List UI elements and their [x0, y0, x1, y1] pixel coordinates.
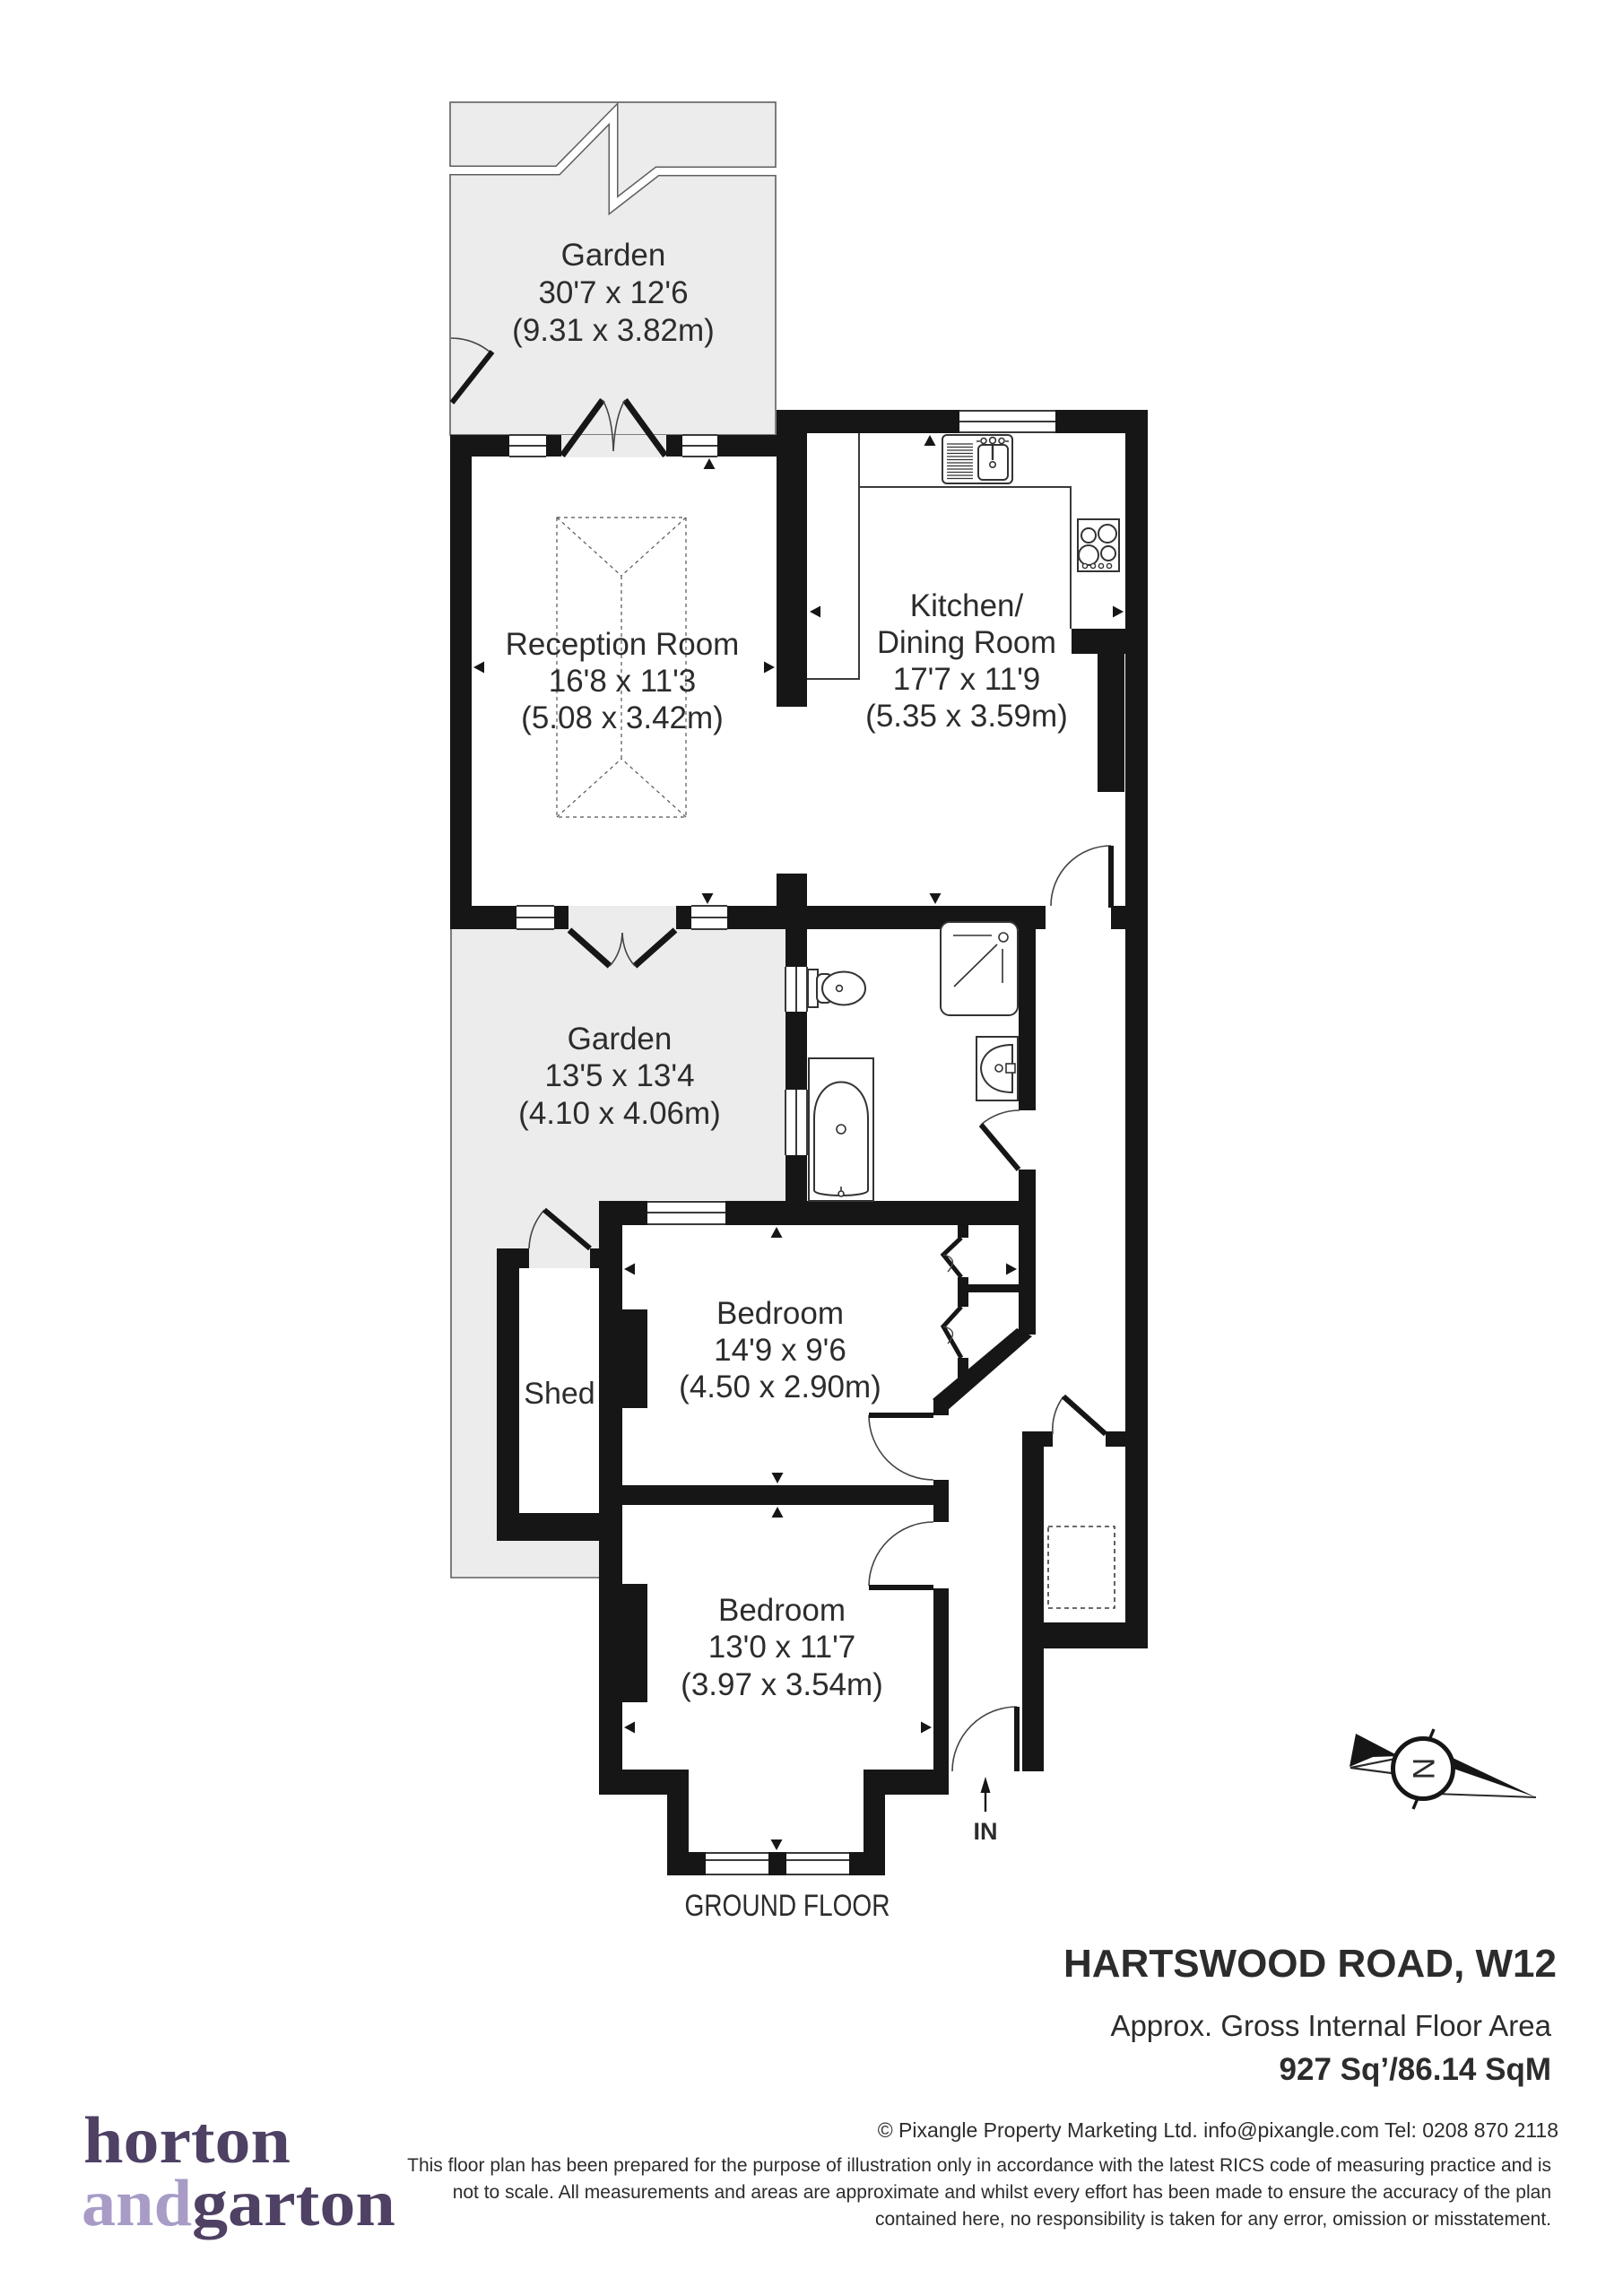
svg-text:Garden: Garden — [568, 1022, 673, 1057]
svg-text:contained here, no responsibil: contained here, no responsibility is tak… — [875, 2209, 1551, 2230]
svg-text:(9.31 x 3.82m): (9.31 x 3.82m) — [512, 313, 715, 348]
svg-text:927 Sq’/86.14 SqM: 927 Sq’/86.14 SqM — [1280, 2052, 1551, 2087]
svg-text:N: N — [1406, 1758, 1440, 1780]
svg-text:30'7 x 12'6: 30'7 x 12'6 — [538, 275, 688, 310]
svg-text:Reception Room: Reception Room — [506, 627, 740, 662]
svg-text:(5.08 x 3.42m): (5.08 x 3.42m) — [521, 700, 724, 735]
svg-text:13'0 x 11'7: 13'0 x 11'7 — [708, 1630, 856, 1665]
svg-text:Shed: Shed — [524, 1377, 595, 1411]
svg-text:16'8 x 11'3: 16'8 x 11'3 — [549, 664, 697, 699]
svg-text:(3.97 x 3.54m): (3.97 x 3.54m) — [681, 1667, 883, 1702]
svg-text:not to scale. All measurements: not to scale. All measurements and areas… — [453, 2182, 1551, 2203]
svg-text:Kitchen/: Kitchen/ — [910, 588, 1024, 623]
svg-text:Approx. Gross Internal Floor A: Approx. Gross Internal Floor Area — [1110, 2009, 1551, 2042]
svg-text:Garden: Garden — [561, 238, 666, 273]
svg-text:(5.35 x 3.59m): (5.35 x 3.59m) — [865, 699, 1068, 734]
svg-text:13'5 x 13'4: 13'5 x 13'4 — [544, 1058, 694, 1093]
svg-text:and: and — [82, 2167, 192, 2240]
svg-text:HARTSWOOD ROAD, W12: HARTSWOOD ROAD, W12 — [1063, 1942, 1557, 1986]
svg-text:Bedroom: Bedroom — [716, 1296, 844, 1331]
svg-text:Bedroom: Bedroom — [718, 1593, 846, 1628]
svg-text:(4.10 x 4.06m): (4.10 x 4.06m) — [518, 1096, 721, 1131]
svg-text:(4.50 x 2.90m): (4.50 x 2.90m) — [679, 1370, 881, 1405]
svg-text:IN: IN — [974, 1818, 998, 1845]
svg-text:© Pixangle Property Marketing: © Pixangle Property Marketing Ltd. info@… — [878, 2118, 1558, 2142]
svg-text:garton: garton — [192, 2167, 395, 2240]
svg-text:Dining Room: Dining Room — [877, 625, 1056, 660]
svg-text:14'9 x 9'6: 14'9 x 9'6 — [714, 1333, 846, 1368]
svg-text:This floor plan has been prepa: This floor plan has been prepared for th… — [407, 2155, 1551, 2176]
svg-text:GROUND FLOOR: GROUND FLOOR — [685, 1889, 890, 1923]
svg-text:17'7 x 11'9: 17'7 x 11'9 — [893, 662, 1041, 697]
